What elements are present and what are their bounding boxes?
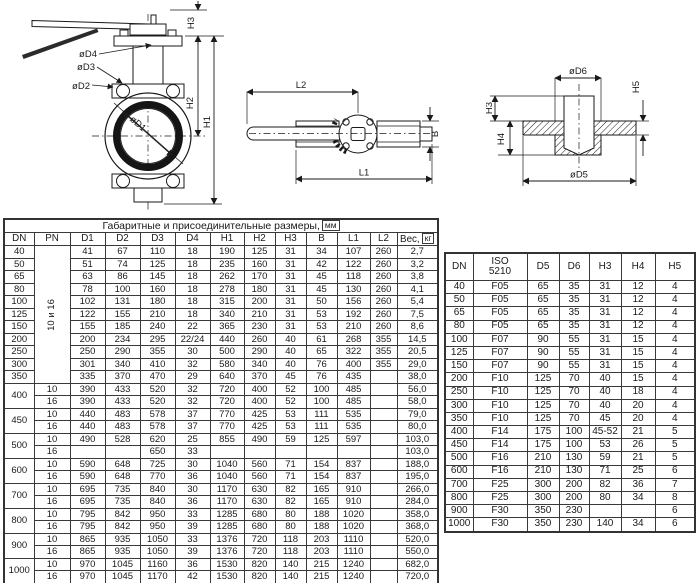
d3-leader xyxy=(97,67,122,83)
value-cell: 18 xyxy=(175,271,210,284)
dn-cell: 80 xyxy=(445,320,473,333)
value-cell: 215 xyxy=(306,571,337,583)
value-cell: 122 xyxy=(70,308,105,321)
dn-cell: 100 xyxy=(4,296,34,309)
value-cell xyxy=(370,433,397,446)
value-cell: 695 xyxy=(70,496,105,509)
value-cell: F07 xyxy=(473,360,527,373)
d6-label: øD6 xyxy=(569,66,587,77)
value-cell xyxy=(337,446,370,459)
value-cell: 29 xyxy=(175,371,210,384)
value-cell: 1240 xyxy=(337,558,370,571)
value-cell: F05 xyxy=(473,294,527,307)
h4-label: H4 xyxy=(496,133,507,145)
value-cell: 795 xyxy=(70,521,105,534)
value-cell: F30 xyxy=(473,518,527,532)
value-cell: 820 xyxy=(244,558,275,571)
iso-row-dn-250: 250F101257040184 xyxy=(445,386,695,399)
value-cell: 970 xyxy=(70,571,105,583)
value-cell: 59 xyxy=(589,452,621,465)
value-cell: 130 xyxy=(337,283,370,296)
col-header-d2: D2 xyxy=(105,233,140,246)
value-cell: 165 xyxy=(306,483,337,496)
value-cell: 8 xyxy=(655,492,695,505)
value-cell: 111 xyxy=(306,408,337,421)
pn-cell: 10 xyxy=(34,458,70,471)
value-cell: 335 xyxy=(70,371,105,384)
value-cell: 440 xyxy=(70,421,105,434)
lever-hub xyxy=(130,24,166,35)
value-cell xyxy=(370,533,397,546)
dn-cell: 200 xyxy=(445,373,473,386)
value-cell: 520 xyxy=(140,383,175,396)
value-cell: 500 xyxy=(210,346,244,359)
value-cell: 65 xyxy=(527,294,559,307)
value-cell: 200 xyxy=(70,333,105,346)
value-cell: 15 xyxy=(621,333,655,346)
value-cell: 1285 xyxy=(210,521,244,534)
value-cell xyxy=(370,408,397,421)
pn-cell: 16 xyxy=(34,471,70,484)
value-cell: 31 xyxy=(275,296,306,309)
value-cell: 1020 xyxy=(337,508,370,521)
value-cell: 1045 xyxy=(105,571,140,583)
value-cell: F07 xyxy=(473,346,527,359)
value-cell: 842 xyxy=(105,508,140,521)
value-cell: 266,0 xyxy=(397,483,438,496)
value-cell: 355 xyxy=(140,346,175,359)
value-cell xyxy=(105,446,140,459)
value-cell: 520 xyxy=(140,396,175,409)
h3-label: H3 xyxy=(186,17,197,29)
value-cell: 2,7 xyxy=(397,246,438,259)
table-row-dn-800-pn16: 16795842950391285680801881020368,0 xyxy=(4,521,438,534)
value-cell: 200 xyxy=(559,492,589,505)
value-cell: 4 xyxy=(655,346,695,359)
col-header-dn: DN xyxy=(445,253,473,281)
flange-bolt-right xyxy=(168,30,176,36)
value-cell: 215 xyxy=(306,558,337,571)
value-cell: 695 xyxy=(70,483,105,496)
value-cell: 230 xyxy=(559,505,589,518)
dn-cell: 150 xyxy=(445,360,473,373)
value-cell: 560 xyxy=(244,458,275,471)
value-cell: 12 xyxy=(621,294,655,307)
value-cell: 21 xyxy=(621,426,655,439)
col-header-h3: H3 xyxy=(275,233,306,246)
d4-label: øD4 xyxy=(79,49,97,60)
dimensions-table: Габаритные и присоединительные размеры,м… xyxy=(3,218,439,583)
value-cell: 648 xyxy=(105,458,140,471)
value-cell: 365 xyxy=(210,321,244,334)
pn-cell: 10 xyxy=(34,508,70,521)
value-cell: 650 xyxy=(140,446,175,459)
value-cell: 18 xyxy=(175,246,210,259)
value-cell: 12 xyxy=(621,320,655,333)
value-cell: 935 xyxy=(105,533,140,546)
value-cell: 40 xyxy=(275,346,306,359)
dn-cell: 350 xyxy=(445,412,473,425)
value-cell: 76 xyxy=(306,371,337,384)
table-row-dn-700-pn16: 1669573584036117063082165910284,0 xyxy=(4,496,438,509)
dn-cell: 350 xyxy=(4,371,34,384)
value-cell: 70 xyxy=(559,386,589,399)
value-cell: 725 xyxy=(140,458,175,471)
value-cell: 31 xyxy=(275,271,306,284)
value-cell: 65 xyxy=(527,307,559,320)
value-cell xyxy=(621,505,655,518)
value-cell: 262 xyxy=(210,271,244,284)
valve-datasheet-page: øD4 øD3 øD2 øD1 H3 H2 H1 xyxy=(0,0,700,583)
value-cell: 18 xyxy=(175,258,210,271)
value-cell: 837 xyxy=(337,471,370,484)
value-cell: 82 xyxy=(275,496,306,509)
value-cell: 31 xyxy=(275,258,306,271)
pn-cell: 16 xyxy=(34,446,70,459)
table-row-dn-900-pn10: 9001086593510503313767201182031110520,0 xyxy=(4,533,438,546)
table-row-dn-200: 20020023429522/24440260406126835514,5 xyxy=(4,333,438,346)
value-cell: 76 xyxy=(306,358,337,371)
table-row-dn-65: 6563861451826217031451182603,8 xyxy=(4,271,438,284)
value-cell: 490 xyxy=(70,433,105,446)
value-cell: F10 xyxy=(473,386,527,399)
value-cell: 65 xyxy=(527,281,559,294)
value-cell: F05 xyxy=(473,281,527,294)
value-cell: 80,0 xyxy=(397,421,438,434)
value-cell: 735 xyxy=(105,483,140,496)
value-cell: 103,0 xyxy=(397,446,438,459)
value-cell: 35 xyxy=(559,281,589,294)
value-cell: 65 xyxy=(527,320,559,333)
dn-cell: 150 xyxy=(4,321,34,334)
value-cell: 190 xyxy=(210,246,244,259)
value-cell: 36 xyxy=(175,558,210,571)
l1-label: L1 xyxy=(359,168,370,179)
value-cell: 425 xyxy=(244,421,275,434)
table-row-dn-600-pn16: 1659064877036104056071154837195,0 xyxy=(4,471,438,484)
value-cell: 33 xyxy=(175,446,210,459)
col-header-b: B xyxy=(306,233,337,246)
value-cell: 82 xyxy=(589,478,621,491)
value-cell: 400 xyxy=(244,396,275,409)
value-cell: 400 xyxy=(337,358,370,371)
value-cell xyxy=(275,446,306,459)
col-header-weight: Вес,кг xyxy=(397,233,438,246)
value-cell: 260 xyxy=(370,271,397,284)
value-cell: 188 xyxy=(306,521,337,534)
value-cell: 4 xyxy=(655,307,695,320)
value-cell: 795 xyxy=(70,508,105,521)
value-cell: 86 xyxy=(105,271,140,284)
table-row-dn-150: 1501551852402236523031532102608,6 xyxy=(4,321,438,334)
value-cell: 370 xyxy=(105,371,140,384)
value-cell: 45 xyxy=(306,271,337,284)
d3-label: øD3 xyxy=(77,62,95,73)
value-cell: 55 xyxy=(559,333,589,346)
value-cell: 720,0 xyxy=(397,571,438,583)
value-cell xyxy=(370,396,397,409)
value-cell: 250 xyxy=(70,346,105,359)
value-cell: 42 xyxy=(175,571,210,583)
value-cell: 260 xyxy=(244,333,275,346)
iso-row-dn-200: 200F101257040154 xyxy=(445,373,695,386)
value-cell: 770 xyxy=(210,408,244,421)
value-cell: 358,0 xyxy=(397,508,438,521)
value-cell: 100 xyxy=(306,383,337,396)
table-title-text: Габаритные и присоединительные размеры, xyxy=(102,220,319,232)
value-cell: 39 xyxy=(175,546,210,559)
value-cell: 31 xyxy=(589,320,621,333)
value-cell: 5,4 xyxy=(397,296,438,309)
value-cell: 4 xyxy=(655,386,695,399)
value-cell: 400 xyxy=(244,383,275,396)
value-cell: 145 xyxy=(140,271,175,284)
dn-cell: 300 xyxy=(445,399,473,412)
value-cell: 4 xyxy=(655,373,695,386)
value-cell: 597 xyxy=(337,433,370,446)
value-cell: 192 xyxy=(337,308,370,321)
value-cell: 1020 xyxy=(337,521,370,534)
value-cell: 1376 xyxy=(210,533,244,546)
value-cell: 15 xyxy=(621,360,655,373)
dn-cell: 700 xyxy=(445,478,473,491)
value-cell: 620 xyxy=(140,433,175,446)
iso-row-dn-600: 600F1621013071256 xyxy=(445,465,695,478)
valve-top-view-drawing: L2 L1 B xyxy=(233,76,443,200)
value-cell xyxy=(589,505,621,518)
value-cell: 640 xyxy=(210,371,244,384)
value-cell: 80 xyxy=(589,492,621,505)
col-header-d6: D6 xyxy=(559,253,589,281)
value-cell: 130 xyxy=(559,465,589,478)
value-cell: 4 xyxy=(655,294,695,307)
dn-cell: 500 xyxy=(445,452,473,465)
value-cell: 100 xyxy=(105,283,140,296)
value-cell xyxy=(244,446,275,459)
value-cell: 5 xyxy=(655,439,695,452)
value-cell: 203 xyxy=(306,533,337,546)
value-cell: 855 xyxy=(210,433,244,446)
value-cell: 30 xyxy=(175,483,210,496)
value-cell: 18 xyxy=(621,386,655,399)
value-cell: 6 xyxy=(655,505,695,518)
value-cell: 490 xyxy=(244,433,275,446)
value-cell: F10 xyxy=(473,412,527,425)
value-cell: 156 xyxy=(337,296,370,309)
pn-cell: 10 xyxy=(34,483,70,496)
value-cell: 7 xyxy=(655,478,695,491)
col-header-iso5210: ISO5210 xyxy=(473,253,527,281)
value-cell: F14 xyxy=(473,439,527,452)
value-cell: 125 xyxy=(527,386,559,399)
body-right-section xyxy=(377,121,420,147)
value-cell: 78 xyxy=(70,283,105,296)
table-row-dn-125: 1251221552101834021031531922607,5 xyxy=(4,308,438,321)
value-cell: 36 xyxy=(621,478,655,491)
value-cell: 433 xyxy=(105,396,140,409)
value-cell: 38,0 xyxy=(397,371,438,384)
col-header-h2: H2 xyxy=(244,233,275,246)
dn-cell: 125 xyxy=(4,308,34,321)
iso-row-dn-300: 300F101257040204 xyxy=(445,399,695,412)
value-cell: 53 xyxy=(306,308,337,321)
value-cell: 260 xyxy=(370,308,397,321)
value-cell: 234 xyxy=(105,333,140,346)
h3-flange-label: H3 xyxy=(486,102,495,114)
value-cell: 5 xyxy=(655,452,695,465)
dn-cell: 40 xyxy=(445,281,473,294)
dn-cell: 500 xyxy=(4,433,34,458)
dn-cell: 600 xyxy=(445,465,473,478)
iso-flange-table: DNISO5210D5D6H3H4H540F0565353112450F0565… xyxy=(444,252,696,533)
value-cell: 125 xyxy=(306,433,337,446)
dn-cell: 65 xyxy=(4,271,34,284)
col-header-h4: H4 xyxy=(621,253,655,281)
value-cell: 1050 xyxy=(140,533,175,546)
pn-cell: 16 xyxy=(34,496,70,509)
dn-cell: 100 xyxy=(445,333,473,346)
table-header-row: DNPND1D2D3D4H1H2H3BL1L2Вес,кг xyxy=(4,233,438,246)
value-cell: 970 xyxy=(70,558,105,571)
value-cell: 34 xyxy=(621,492,655,505)
value-cell: 118 xyxy=(275,533,306,546)
value-cell: 210 xyxy=(527,452,559,465)
value-cell xyxy=(370,471,397,484)
dn-cell: 65 xyxy=(445,307,473,320)
iso-row-dn-50: 50F05653531124 xyxy=(445,294,695,307)
col-header-h1: H1 xyxy=(210,233,244,246)
value-cell: 111 xyxy=(306,421,337,434)
col-header-d3: D3 xyxy=(140,233,175,246)
value-cell xyxy=(370,371,397,384)
value-cell xyxy=(370,571,397,583)
pn-merged-cell: 10 и 16 xyxy=(34,246,70,384)
value-cell: 4 xyxy=(655,320,695,333)
value-cell: 578 xyxy=(140,408,175,421)
iso-header-line2: 5210 xyxy=(474,267,527,278)
value-cell: 235 xyxy=(210,258,244,271)
value-cell: 63 xyxy=(70,271,105,284)
value-cell: 61 xyxy=(306,333,337,346)
value-cell: 53 xyxy=(306,321,337,334)
value-cell: 35 xyxy=(559,294,589,307)
value-cell: 910 xyxy=(337,496,370,509)
value-cell: 170 xyxy=(244,271,275,284)
value-cell: 155 xyxy=(105,308,140,321)
value-cell: 130 xyxy=(559,452,589,465)
dn-cell: 250 xyxy=(4,346,34,359)
iso-row-dn-1000: 1000F30350230140346 xyxy=(445,518,695,532)
table-row-dn-900-pn16: 1686593510503913767201182031110550,0 xyxy=(4,546,438,559)
bolt-hole-top-left xyxy=(117,85,130,98)
value-cell: 210 xyxy=(337,321,370,334)
value-cell xyxy=(370,508,397,521)
pn-cell: 16 xyxy=(34,571,70,583)
value-cell: 40 xyxy=(589,386,621,399)
value-cell: 154 xyxy=(306,458,337,471)
value-cell: 1170 xyxy=(140,571,175,583)
value-cell: 22/24 xyxy=(175,333,210,346)
value-cell: 42 xyxy=(306,258,337,271)
value-cell: 20,5 xyxy=(397,346,438,359)
value-cell: 200 xyxy=(244,296,275,309)
dn-cell: 1000 xyxy=(4,558,34,583)
value-cell: 18 xyxy=(175,296,210,309)
value-cell: 950 xyxy=(140,521,175,534)
value-cell: 110 xyxy=(140,246,175,259)
value-cell: 175 xyxy=(527,439,559,452)
value-cell: F10 xyxy=(473,373,527,386)
value-cell: 1376 xyxy=(210,546,244,559)
value-cell: 90 xyxy=(527,346,559,359)
value-cell: 340 xyxy=(244,358,275,371)
value-cell: 102 xyxy=(70,296,105,309)
value-cell xyxy=(70,446,105,459)
value-cell: 31 xyxy=(589,346,621,359)
col-header-l2: L2 xyxy=(370,233,397,246)
value-cell: 30 xyxy=(175,458,210,471)
value-cell: F07 xyxy=(473,333,527,346)
value-cell: 32 xyxy=(175,358,210,371)
table-title-row: Габаритные и присоединительные размеры,м… xyxy=(4,219,438,233)
value-cell: 18 xyxy=(175,308,210,321)
dn-cell: 700 xyxy=(4,483,34,508)
bottom-foot xyxy=(134,188,162,202)
value-cell: 140 xyxy=(589,518,621,532)
dn-cell: 80 xyxy=(4,283,34,296)
value-cell: 1170 xyxy=(210,483,244,496)
value-cell: 355 xyxy=(370,346,397,359)
pn-cell: 10 xyxy=(34,433,70,446)
h2-label: H2 xyxy=(185,97,196,109)
value-cell: 203 xyxy=(306,546,337,559)
iso-header-row: DNISO5210D5D6H3H4H5 xyxy=(445,253,695,281)
value-cell: 1240 xyxy=(337,571,370,583)
table-row-dn-800-pn10: 80010795842950331285680801881020358,0 xyxy=(4,508,438,521)
value-cell: 840 xyxy=(140,496,175,509)
value-cell: 290 xyxy=(105,346,140,359)
value-cell: 65 xyxy=(306,346,337,359)
table-row-dn-1000-pn16: 16970104511704215308201402151240720,0 xyxy=(4,571,438,583)
col-header-pn: PN xyxy=(34,233,70,246)
value-cell: 1530 xyxy=(210,571,244,583)
iso-row-dn-400: 400F1417510045-52215 xyxy=(445,426,695,439)
value-cell: 37 xyxy=(175,408,210,421)
value-cell: 720 xyxy=(210,396,244,409)
table-row-dn-450-pn16: 16440483578377704255311153580,0 xyxy=(4,421,438,434)
value-cell: 195,0 xyxy=(397,471,438,484)
value-cell: 45 xyxy=(275,371,306,384)
table-row-dn-80: 80781001601827818031451302604,1 xyxy=(4,283,438,296)
value-cell: 368,0 xyxy=(397,521,438,534)
value-cell: 4 xyxy=(655,333,695,346)
value-cell: 29,0 xyxy=(397,358,438,371)
value-cell: 21 xyxy=(621,452,655,465)
bolt-hole-bottom-right xyxy=(167,175,180,188)
value-cell xyxy=(370,383,397,396)
value-cell: 410 xyxy=(140,358,175,371)
table-row-dn-100: 1001021311801831520031501562605,4 xyxy=(4,296,438,309)
value-cell: 842 xyxy=(105,521,140,534)
value-cell: 160 xyxy=(244,258,275,271)
value-cell: 131 xyxy=(105,296,140,309)
value-cell: 910 xyxy=(337,483,370,496)
dn-cell: 450 xyxy=(445,439,473,452)
value-cell: 680 xyxy=(244,508,275,521)
value-cell: 210 xyxy=(140,308,175,321)
value-cell: 40 xyxy=(275,333,306,346)
value-cell: 3,2 xyxy=(397,258,438,271)
